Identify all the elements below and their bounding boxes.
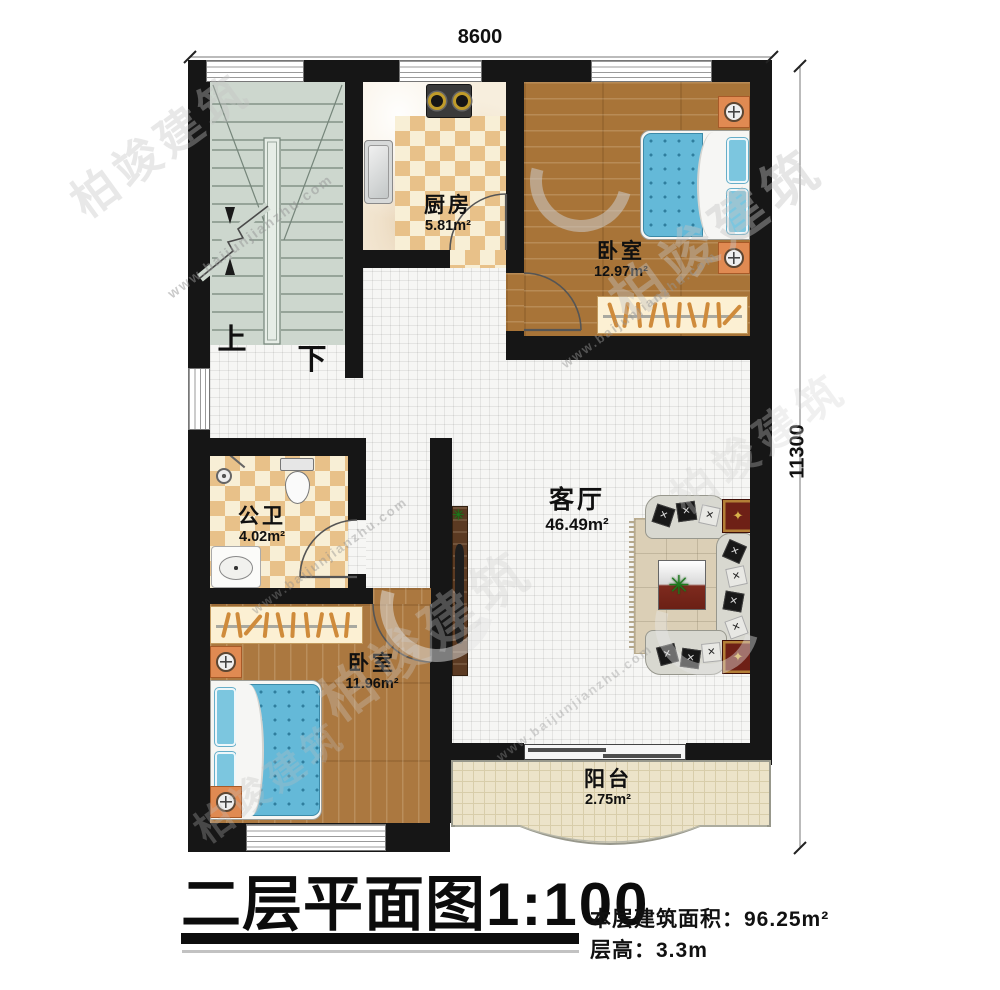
nightstand bbox=[718, 242, 750, 274]
wardrobe-bottom bbox=[210, 606, 363, 644]
lamp-icon bbox=[724, 102, 744, 122]
sofa-pillow bbox=[722, 539, 747, 564]
wall-right bbox=[750, 60, 772, 765]
stairs-up-label: 上 bbox=[217, 316, 246, 358]
title-underline-thin bbox=[182, 950, 579, 953]
dimension-width-label: 8600 bbox=[430, 26, 530, 49]
sofa-pillow bbox=[722, 590, 744, 612]
stove-icon bbox=[426, 84, 472, 118]
staircase-floor bbox=[210, 82, 345, 345]
sofa-top bbox=[645, 495, 727, 539]
nightstand bbox=[210, 786, 242, 818]
wall-bathroom-bedroom-divider bbox=[188, 588, 373, 604]
room-name: 客厅 bbox=[545, 486, 608, 515]
burner-icon bbox=[428, 92, 446, 110]
room-area: 5.81m² bbox=[424, 218, 472, 235]
window-top-kitchen bbox=[399, 60, 482, 82]
tv-icon bbox=[455, 544, 464, 644]
room-area: 4.02m² bbox=[238, 529, 286, 546]
burner-icon bbox=[453, 92, 471, 110]
room-name: 公卫 bbox=[238, 505, 286, 529]
toilet-tank-icon bbox=[280, 458, 314, 471]
room-area: 2.75m² bbox=[584, 792, 632, 809]
wall-kitchen-bedroom bbox=[506, 82, 524, 273]
kitchen-door-threshold bbox=[450, 250, 506, 268]
sofa-bottom bbox=[645, 630, 727, 675]
sofa-right bbox=[716, 533, 752, 645]
window-left-hall bbox=[188, 368, 210, 430]
dimension-height-label: 11300 bbox=[787, 412, 810, 492]
title-underline-bar bbox=[181, 933, 579, 944]
bed-top-sheet-fold bbox=[697, 132, 727, 238]
bed-top-mattress bbox=[643, 133, 703, 237]
wall-bedroom-top-bottom bbox=[506, 336, 772, 360]
nightstand bbox=[210, 646, 242, 678]
window-top-bedroom bbox=[591, 60, 712, 82]
kitchen-sink-icon bbox=[364, 140, 393, 204]
room-label-balcony: 阳台 2.75m² bbox=[584, 768, 632, 809]
drawing-title: 二层平面图1:100 bbox=[181, 856, 649, 943]
room-label-bedroom-top: 卧室 12.97m² bbox=[594, 240, 648, 281]
room-area: 46.49m² bbox=[545, 515, 608, 535]
sofa-pillow bbox=[656, 643, 679, 666]
bed-bottom-pillow bbox=[215, 688, 236, 746]
plant-icon bbox=[452, 508, 465, 523]
room-name: 厨房 bbox=[424, 194, 472, 218]
drawing-title-text: 二层平面图 bbox=[181, 871, 486, 938]
wall-balcony-right bbox=[686, 743, 752, 761]
nightstand bbox=[718, 96, 750, 128]
sofa-pillow bbox=[680, 648, 701, 669]
bed-top-pillow bbox=[727, 138, 748, 183]
room-label-living-room: 客厅 46.49m² bbox=[545, 486, 608, 534]
wall-bathroom-top bbox=[188, 438, 366, 456]
wardrobe-top bbox=[597, 296, 748, 334]
sliding-door-panel bbox=[528, 748, 606, 752]
floor-area-note: 本层建筑面积：96.25m² bbox=[590, 903, 829, 933]
room-label-bathroom: 公卫 4.02m² bbox=[238, 505, 286, 546]
room-area: 11.96m² bbox=[345, 676, 398, 693]
bedroom-top-door-threshold bbox=[506, 273, 524, 331]
bathroom-door-threshold bbox=[348, 520, 366, 574]
room-name: 卧室 bbox=[594, 240, 648, 264]
wall-kitchen-bottom bbox=[345, 250, 450, 268]
wall-stairs-right bbox=[345, 82, 363, 378]
shower-head-icon bbox=[216, 468, 232, 484]
wall-balcony-left bbox=[452, 743, 524, 761]
room-name: 卧室 bbox=[345, 652, 398, 676]
sofa-pillow bbox=[652, 504, 676, 528]
sofa-pillow bbox=[701, 642, 722, 663]
plant-icon bbox=[668, 572, 690, 598]
bedroom-bottom-door-threshold bbox=[373, 588, 431, 604]
bed-top-pillow bbox=[727, 189, 748, 234]
washbasin-drain-icon bbox=[234, 566, 238, 570]
window-bottom-bedroom bbox=[246, 824, 386, 851]
lamp-icon bbox=[724, 248, 744, 268]
room-label-bedroom-bottom: 卧室 11.96m² bbox=[345, 652, 398, 693]
sliding-door bbox=[524, 744, 686, 760]
window-top-stairs bbox=[206, 60, 304, 82]
floor-height-note: 层高：3.3m bbox=[590, 934, 708, 964]
stairs-down-label: 下 bbox=[297, 336, 326, 378]
room-area: 12.97m² bbox=[594, 264, 648, 281]
room-label-kitchen: 厨房 5.81m² bbox=[424, 194, 472, 235]
sofa-pillow bbox=[698, 504, 721, 527]
sliding-door-panel bbox=[603, 754, 681, 758]
room-name: 阳台 bbox=[584, 768, 632, 792]
sofa-pillow bbox=[724, 615, 748, 639]
sofa-pillow bbox=[676, 501, 697, 522]
lamp-icon bbox=[216, 792, 236, 812]
wall-bathroom-right-upper bbox=[348, 438, 366, 520]
sofa-pillow bbox=[725, 565, 748, 588]
lamp-icon bbox=[216, 652, 236, 672]
floor-plan-canvas: 厨房 5.81m² 卧室 12.97m² 公卫 4.02m² 客厅 46.49m… bbox=[0, 0, 1000, 990]
wall-living-left bbox=[430, 438, 452, 823]
